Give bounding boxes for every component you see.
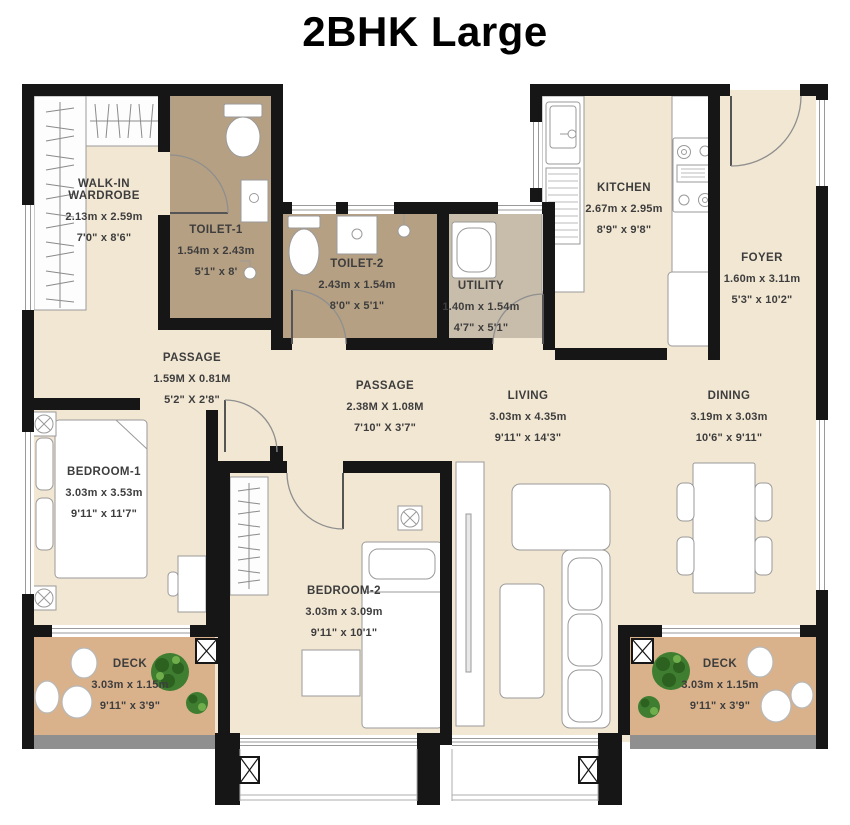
fridge-icon [668,272,714,346]
window [498,202,542,214]
room-name: PASSAGE [153,352,230,364]
room-name: LIVING [489,390,566,402]
room-dim-imperial: 5'1" x 8' [177,266,254,278]
window [816,420,828,590]
shaft-icon [579,757,598,783]
shaft-icon [240,757,259,783]
bedside-table-icon [398,506,422,530]
room-dim-imperial: 9'11" x 14'3" [489,432,566,444]
room-dim-imperial: 4'7" x 5'1" [442,322,519,334]
room-label-bedroom2: BEDROOM-2 3.03m x 3.09m 9'11" x 10'1" [305,585,382,648]
room-dim-metric: 3.03m x 1.15m [681,679,758,691]
room-dim-metric: 1.59M X 0.81M [153,373,230,385]
toilet1-washbasin-icon [241,180,268,222]
room-label-deck-left: DECK 3.03m x 1.15m 9'11" x 3'9" [91,658,168,721]
room-label-passage2: PASSAGE 2.38M X 1.08M 7'10" X 3'7" [346,380,423,443]
room-dim-imperial: 8'9" x 9'8" [585,224,662,236]
room-name: WALK-IN WARDROBE [54,178,154,202]
window [816,100,828,186]
toilet1-wc-icon [224,104,262,157]
toilet2-washbasin-icon [337,216,377,254]
room-dim-metric: 2.43m x 1.54m [318,279,395,291]
shaft-icon [632,639,653,663]
window [662,625,800,637]
room-name: PASSAGE [346,380,423,392]
room-name: TOILET-2 [318,258,395,270]
room-name: BEDROOM-1 [65,466,142,478]
bedside-table-icon [32,586,56,610]
room-dim-imperial: 7'0" x 8'6" [54,232,154,244]
room-dim-imperial: 5'2" X 2'8" [153,394,230,406]
room-dim-imperial: 9'11" x 3'9" [681,700,758,712]
room-name: BEDROOM-2 [305,585,382,597]
room-label-toilet1: TOILET-1 1.54m x 2.43m 5'1" x 8' [177,224,254,287]
wardrobe-rack-icon [230,477,268,595]
room-dim-imperial: 8'0" x 5'1" [318,300,395,312]
window [530,122,542,188]
room-label-deck-right: DECK 3.03m x 1.15m 9'11" x 3'9" [681,658,758,721]
room-label-toilet2: TOILET-2 2.43m x 1.54m 8'0" x 5'1" [318,258,395,321]
room-dim-metric: 1.54m x 2.43m [177,245,254,257]
window [22,432,34,594]
window [240,735,417,749]
deck-edge-right [630,735,828,749]
room-name: KITCHEN [585,182,662,194]
room-label-living: LIVING 3.03m x 4.35m 9'11" x 14'3" [489,390,566,453]
room-label-walkin-wardrobe: WALK-IN WARDROBE 2.13m x 2.59m 7'0" x 8'… [54,178,154,253]
room-label-foyer: FOYER 1.60m x 3.11m 5'3" x 10'2" [724,252,801,315]
room-name: FOYER [724,252,801,264]
room-dim-metric: 3.03m x 3.09m [305,606,382,618]
room-dim-imperial: 10'6" x 9'11" [690,432,767,444]
shaft-icon [196,639,217,663]
room-dim-imperial: 5'3" x 10'2" [724,294,801,306]
room-name: TOILET-1 [177,224,254,236]
deck-edge-left [22,735,218,749]
room-dim-metric: 2.38M X 1.08M [346,401,423,413]
room-dim-metric: 3.03m x 4.35m [489,411,566,423]
washing-machine-icon [452,222,496,278]
window [452,735,598,749]
room-dim-metric: 3.19m x 3.03m [690,411,767,423]
dresser-icon [302,650,360,696]
room-dim-metric: 1.40m x 1.54m [442,301,519,313]
floor-plan-page: 2BHK Large [0,0,850,825]
window [348,202,394,214]
window [52,625,190,637]
room-dim-imperial: 7'10" X 3'7" [346,422,423,434]
room-label-dining: DINING 3.19m x 3.03m 10'6" x 9'11" [690,390,767,453]
room-label-kitchen: KITCHEN 2.67m x 2.95m 8'9" x 9'8" [585,182,662,245]
room-label-passage1: PASSAGE 1.59M X 0.81M 5'2" X 2'8" [153,352,230,415]
room-name: DECK [681,658,758,670]
room-name: DECK [91,658,168,670]
bedside-table-icon [32,412,56,436]
coffee-table-icon [500,584,544,698]
room-name: UTILITY [442,280,519,292]
toilet2-wc-icon [288,216,320,275]
room-dim-metric: 1.60m x 3.11m [724,273,801,285]
room-name: DINING [690,390,767,402]
room-dim-imperial: 9'11" x 11'7" [65,508,142,520]
room-dim-metric: 2.13m x 2.59m [54,211,154,223]
tv-unit-icon [456,462,484,726]
room-dim-imperial: 9'11" x 3'9" [91,700,168,712]
room-label-bedroom1: BEDROOM-1 3.03m x 3.53m 9'11" x 11'7" [65,466,142,529]
room-dim-metric: 3.03m x 1.15m [91,679,168,691]
room-dim-metric: 3.03m x 3.53m [65,487,142,499]
room-dim-metric: 2.67m x 2.95m [585,203,662,215]
window [292,202,336,214]
room-label-utility: UTILITY 1.40m x 1.54m 4'7" x 5'1" [442,280,519,343]
room-dim-imperial: 9'11" x 10'1" [305,627,382,639]
window [22,205,34,310]
